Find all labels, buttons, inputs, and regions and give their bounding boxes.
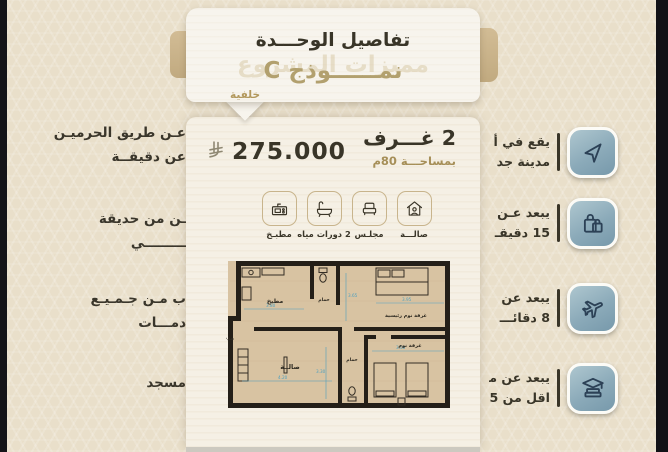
svg-text:3.65: 3.65 <box>348 293 358 298</box>
price-value: 275.000 <box>232 137 346 165</box>
left-text-line: ـن من حديقة <box>20 208 186 232</box>
price-block: 275.000 <box>208 137 346 165</box>
amenity-hall: صالـــة <box>394 191 434 239</box>
rooms-area: بمساحـــة 80م <box>350 154 456 168</box>
feature-airport: يبعد عن 8 دقائـــ <box>489 282 618 334</box>
floorplan-label-bedroom: غرفة نوم <box>398 343 421 349</box>
left-text-mosque: مسجد <box>20 372 186 396</box>
divider-bar <box>557 289 560 327</box>
feature-text: يبعد عـن 15 دقيقـ <box>489 203 550 242</box>
left-text-line: عـن طريق الحرميـن <box>20 122 186 146</box>
right-dark-edge <box>656 0 668 452</box>
brochure-page: عـن طريق الحرميـن عن دقيقــة ـن من حديقة… <box>0 0 668 452</box>
amenity-label: مجلـس <box>354 229 383 239</box>
card-bottom-edge <box>186 447 480 452</box>
floorplan-label-master-bedroom: غرفة نوم رئيسية <box>385 313 427 319</box>
amenity-label: 2 دورات مياه <box>297 229 350 239</box>
feature-text: يقع في أ مدينة جد <box>489 132 550 171</box>
feature-location: يقع في أ مدينة جد <box>489 126 618 178</box>
hall-icon <box>397 191 432 226</box>
majlis-icon <box>352 191 387 226</box>
left-text-line: مسجد <box>20 372 186 396</box>
amenity-label: صالـــة <box>400 229 428 239</box>
amenity-label: مطبـخ <box>266 229 291 239</box>
svg-text:3.30: 3.30 <box>316 369 326 374</box>
divider-bar <box>557 133 560 171</box>
left-text-line: دمـــات <box>20 312 186 336</box>
airplane-icon <box>567 283 618 334</box>
feature-line: 8 دقائـــ <box>489 308 550 328</box>
floorplan-label-bath1: حمام <box>318 298 329 303</box>
divider-bar <box>557 204 560 242</box>
rooms-block: 2 غـــرف بمساحـــة 80م <box>350 125 456 168</box>
left-text-line: ب مـن جـمـيـع <box>20 288 186 312</box>
feature-line: يبعد عن <box>489 288 550 308</box>
left-text-services: ب مـن جـمـيـع دمـــات <box>20 288 186 335</box>
kitchen-icon <box>262 191 297 226</box>
floorplan-label-bath2: حمام <box>346 358 357 363</box>
feature-line: يبعد عن مـ <box>489 368 550 388</box>
feature-line: 15 دقيقـ <box>489 223 550 243</box>
saudi-riyal-symbol-icon <box>208 140 224 162</box>
amenity-majlis: مجلـس <box>349 191 389 239</box>
feature-shopping: يبعد عـن 15 دقيقـ <box>489 197 618 249</box>
unit-details-card: 2 غـــرف بمساحـــة 80م 275.000 <box>186 117 480 448</box>
svg-text:3.95: 3.95 <box>402 297 412 302</box>
feature-text: يبعد عن 8 دقائـــ <box>489 288 550 327</box>
left-text-highway: عـن طريق الحرميـن عن دقيقــة <box>20 122 186 169</box>
shopping-bags-icon <box>567 198 618 249</box>
left-text-garden: ـن من حديقة ـــــــــي <box>20 208 186 255</box>
feature-line: اقل من 5 <box>489 388 550 408</box>
rooms-count: 2 غـــرف <box>350 125 456 152</box>
left-text-line: عن دقيقــة <box>20 146 186 170</box>
amenities-row: صالـــة مجلـس <box>256 191 434 239</box>
floorplan-label-hall: صالــة <box>280 363 300 371</box>
amenity-kitchen: مطبـخ <box>259 191 299 239</box>
floorplan-label-kitchen: مطبخ <box>267 298 284 305</box>
header-card: مميزات المشروع تفاصيل الوحـــدة نمــــــ… <box>186 8 480 102</box>
ribbon-right <box>478 28 498 82</box>
svg-text:4.20: 4.20 <box>278 375 288 380</box>
feature-line: يقع في أ <box>489 132 550 152</box>
feature-schools: يبعد عن مـ اقل من 5 <box>489 362 618 414</box>
background-tab-label: خلفية <box>220 89 270 101</box>
feature-text: يبعد عن مـ اقل من 5 <box>489 368 550 407</box>
left-dark-edge <box>0 0 7 452</box>
feature-line: يبعد عـن <box>489 203 550 223</box>
page-title: تفاصيل الوحـــدة <box>186 30 480 51</box>
model-title: نمــــــوذج C <box>186 58 480 84</box>
floor-plan: 3.80 3.65 4.20 3.30 3.00 3.95 مطبخ حمام <box>226 251 455 418</box>
amenity-bathrooms: 2 دورات مياه <box>304 191 344 239</box>
feature-line: مدينة جد <box>489 152 550 172</box>
navigation-arrow-icon <box>567 127 618 178</box>
left-text-line: ـــــــــي <box>20 232 186 256</box>
graduation-books-icon <box>567 363 618 414</box>
divider-bar <box>557 369 560 407</box>
floorplan-label-entrance: مدخـــل <box>226 336 234 342</box>
bathrooms-icon <box>307 191 342 226</box>
